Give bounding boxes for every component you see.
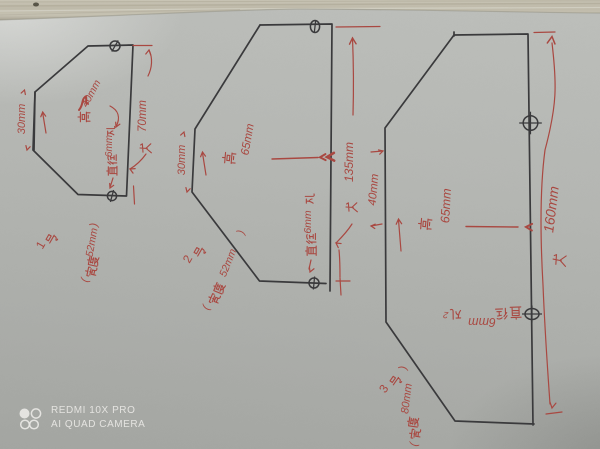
svg-text:6mm: 6mm <box>104 135 115 157</box>
svg-text:6mm: 6mm <box>468 315 496 329</box>
svg-text:135mm: 135mm <box>342 142 356 182</box>
svg-text:2: 2 <box>443 310 450 320</box>
svg-text:6mm: 6mm <box>302 210 314 234</box>
svg-text:30mm: 30mm <box>16 104 28 135</box>
svg-text:65mm: 65mm <box>438 188 454 223</box>
svg-text:70mm: 70mm <box>137 100 149 132</box>
svg-text:30mm: 30mm <box>176 145 188 176</box>
